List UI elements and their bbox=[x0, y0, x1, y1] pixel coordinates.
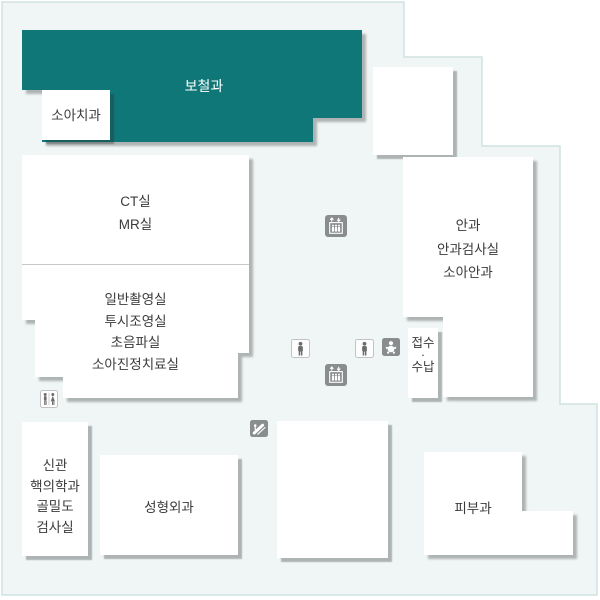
room-reception-label: 접수 · 수납 bbox=[408, 336, 438, 375]
room-imaging-upper-line: CT실 bbox=[22, 190, 249, 213]
room-annex-nuclear-medicine-label: 신관 핵의학과 골밀도 검사실 bbox=[22, 456, 88, 538]
nursing-room-baby-icon bbox=[382, 338, 400, 356]
room-annex-line: 핵의학과 bbox=[22, 477, 88, 498]
room-annex-line: 검사실 bbox=[22, 518, 88, 539]
room-plastic-surgery-label: 성형외과 bbox=[100, 497, 238, 518]
room-ophthalmology-line: 소아안과 bbox=[403, 261, 533, 285]
elevator-icon bbox=[325, 215, 347, 237]
room-dermatology-label: 피부과 bbox=[424, 498, 522, 519]
room-imaging-lower-label: 일반촬영실 투시조영실 초음파실 소아진정치료실 bbox=[22, 289, 249, 375]
restroom-person-icon bbox=[355, 339, 374, 358]
elevator-icon bbox=[325, 364, 347, 386]
room-reception-line: 수납 bbox=[408, 360, 438, 375]
male-female-restroom-icon bbox=[40, 390, 58, 408]
room-imaging-lower-line: 초음파실 bbox=[22, 332, 249, 354]
escalator-icon bbox=[250, 420, 268, 437]
room-imaging-lower-line: 소아진정치료실 bbox=[22, 354, 249, 376]
room-unlabeled-top-right bbox=[373, 67, 453, 155]
room-unlabeled-bottom-middle bbox=[277, 421, 388, 558]
room-pediatric-dentistry-label: 소아치과 bbox=[42, 105, 110, 126]
room-ophthalmology-line: 안과검사실 bbox=[403, 238, 533, 262]
room-annex-line: 신관 bbox=[22, 456, 88, 477]
room-imaging-upper-label: CT실 MR실 bbox=[22, 190, 249, 236]
room-prosthodontics-label: 보철과 bbox=[34, 76, 374, 97]
room-ophthalmology-label: 안과 안과검사실 소아안과 bbox=[403, 214, 533, 285]
room-ophthalmology-line: 안과 bbox=[403, 214, 533, 238]
room-imaging-lower-line: 투시조영실 bbox=[22, 311, 249, 333]
room-reception-line: · bbox=[408, 351, 438, 360]
restroom-person-icon bbox=[291, 339, 310, 358]
hospital-floor-map: 보철과 소아치과 CT실 MR실 일반촬영실 투시조영실 초음파실 소아진정치료… bbox=[0, 0, 600, 600]
room-imaging-lower-line: 일반촬영실 bbox=[22, 289, 249, 311]
imaging-block-divider bbox=[22, 264, 249, 265]
room-annex-line: 골밀도 bbox=[22, 497, 88, 518]
room-imaging-upper-line: MR실 bbox=[22, 213, 249, 236]
